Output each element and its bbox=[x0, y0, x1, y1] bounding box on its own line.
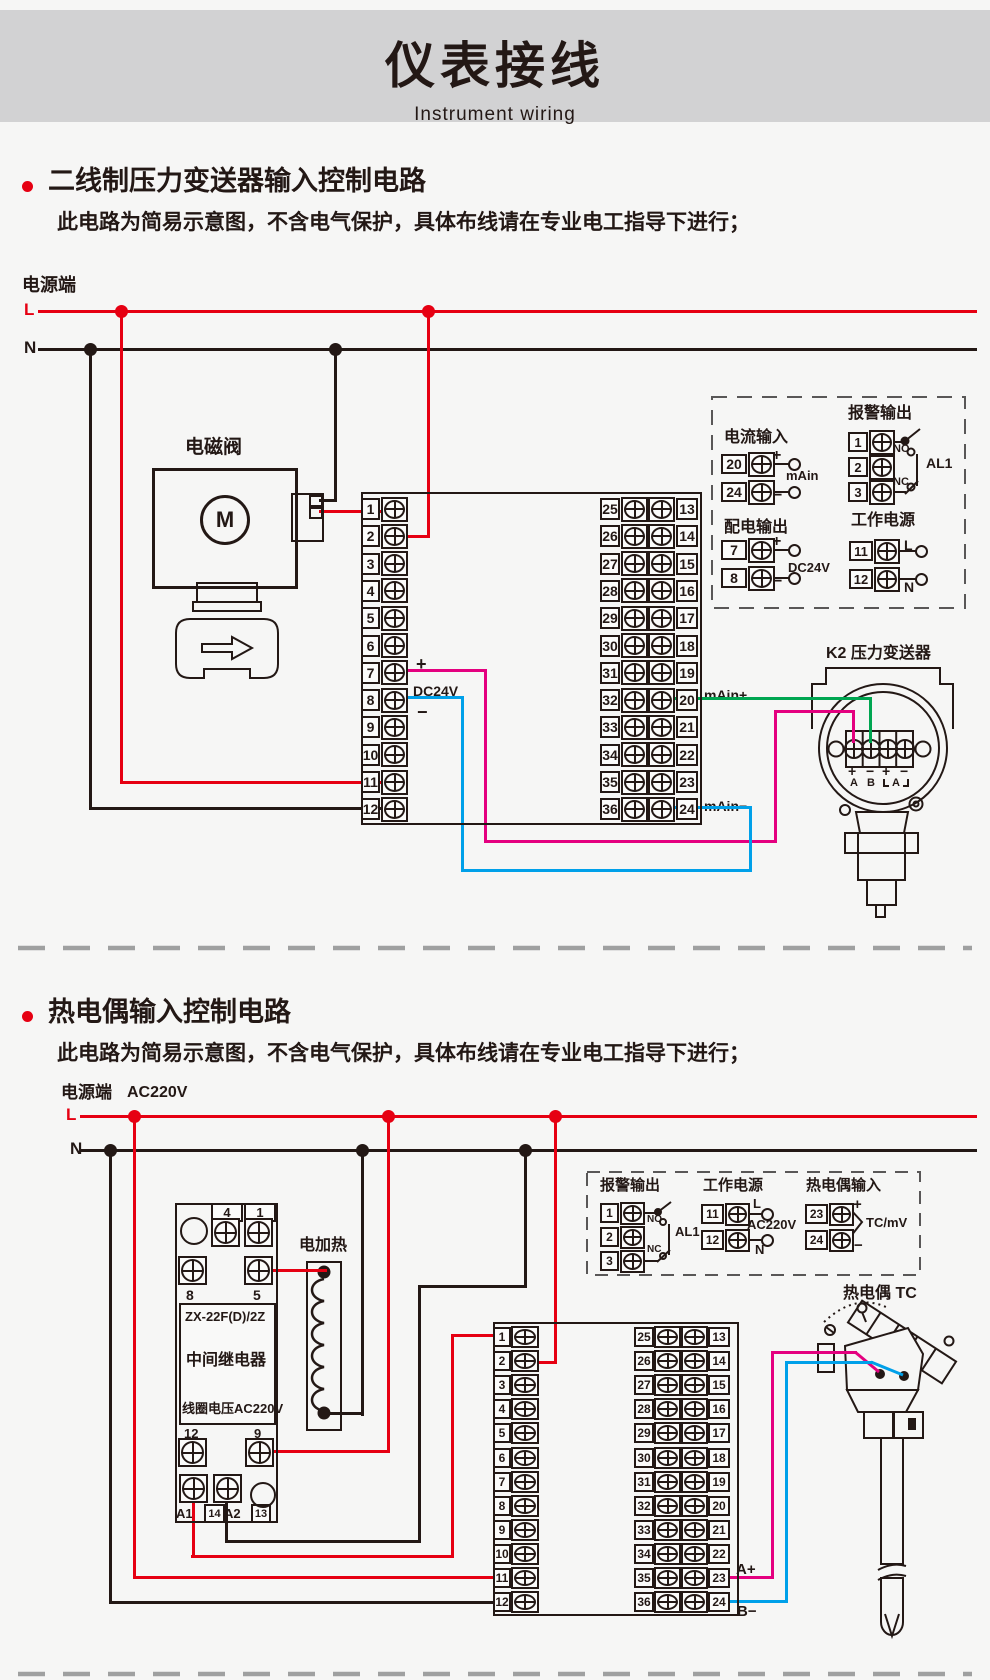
wire-segment bbox=[334, 348, 337, 502]
wire-segment bbox=[133, 1576, 523, 1579]
terminal-screw bbox=[869, 455, 895, 480]
terminal-screw bbox=[869, 430, 895, 455]
panel1-alarm-no: NO bbox=[893, 444, 910, 455]
screw-cross-icon bbox=[684, 1401, 705, 1417]
wire-segment bbox=[109, 1149, 112, 1604]
terminal-number: 26 bbox=[600, 525, 620, 547]
transmitter-label: K2 压力变送器 bbox=[826, 646, 931, 662]
open-terminal bbox=[788, 458, 801, 471]
junction-dot bbox=[115, 305, 128, 318]
screw-cross-icon bbox=[877, 570, 897, 589]
screw-cross-icon bbox=[832, 1232, 851, 1249]
section2-bullet bbox=[22, 1011, 33, 1022]
terminal-screw bbox=[654, 1591, 681, 1613]
terminal-screw bbox=[621, 524, 648, 549]
transmitter-a: A bbox=[850, 778, 858, 789]
terminal-number: 20 bbox=[721, 454, 747, 474]
screw-cross-icon bbox=[514, 1522, 536, 1538]
section1-heading: 二线制压力变送器输入控制电路 bbox=[48, 168, 426, 195]
screw-cross-icon bbox=[684, 1498, 705, 1514]
terminal-number: 6 bbox=[493, 1448, 511, 1468]
terminal-screw bbox=[681, 1495, 708, 1517]
wire-segment bbox=[869, 697, 872, 743]
terminal-screw bbox=[620, 1226, 645, 1249]
terminal-screw bbox=[381, 524, 408, 549]
screw-cross-icon bbox=[651, 527, 672, 546]
screw-cross-icon bbox=[657, 1377, 678, 1393]
terminal-number: 12 bbox=[361, 798, 380, 820]
terminal-number: 10 bbox=[493, 1544, 511, 1564]
tc-b-minus-label: B− bbox=[737, 1604, 757, 1619]
terminal-screw bbox=[748, 566, 775, 591]
screw-cross-icon bbox=[657, 1474, 678, 1490]
wire-segment bbox=[133, 1115, 136, 1579]
screw-cross-icon bbox=[623, 1229, 642, 1246]
terminal-number: 15 bbox=[708, 1375, 730, 1395]
terminal-number: 1 bbox=[493, 1327, 511, 1347]
panel2-tc-label: TC/mV bbox=[866, 1216, 907, 1229]
terminal-number: 36 bbox=[600, 798, 620, 820]
terminal-number: 8 bbox=[493, 1496, 511, 1516]
terminal-screw bbox=[648, 770, 675, 795]
terminal-screw bbox=[244, 1218, 273, 1247]
screw-cross-icon bbox=[624, 609, 645, 628]
line-l-label-1: L bbox=[24, 301, 34, 318]
terminal-screw bbox=[654, 1519, 681, 1541]
terminal-screw bbox=[511, 1422, 539, 1444]
wire-segment bbox=[451, 1334, 454, 1558]
terminal-screw bbox=[621, 551, 648, 576]
wire-segment bbox=[109, 1601, 523, 1604]
valve-connector-pin bbox=[309, 495, 323, 507]
terminal-screw bbox=[681, 1567, 708, 1589]
terminal-screw bbox=[654, 1350, 681, 1372]
terminal-screw bbox=[648, 742, 675, 767]
screw-cross-icon bbox=[651, 554, 672, 573]
terminal-screw bbox=[511, 1495, 539, 1517]
junction-dot bbox=[84, 343, 97, 356]
terminal-screw bbox=[648, 551, 675, 576]
terminal-number: 21 bbox=[708, 1520, 730, 1540]
screw-cross-icon bbox=[514, 1353, 536, 1369]
screw-cross-icon bbox=[751, 569, 772, 588]
terminal-number: 22 bbox=[676, 744, 698, 766]
terminal-number: 15 bbox=[676, 553, 698, 575]
terminal-screw bbox=[621, 578, 648, 603]
screw-cross-icon bbox=[514, 1570, 536, 1586]
terminal-number: 1 bbox=[361, 498, 380, 520]
terminal-number: 10 bbox=[361, 744, 380, 766]
terminal-screw bbox=[511, 1471, 539, 1493]
terminal-number: 7 bbox=[361, 662, 380, 684]
terminal-number: 11 bbox=[849, 541, 873, 561]
junction-dot bbox=[128, 1110, 141, 1123]
screw-cross-icon bbox=[624, 581, 645, 600]
screw-cross-icon bbox=[657, 1425, 678, 1441]
terminal-number: 1 bbox=[848, 432, 868, 452]
terminal-screw bbox=[748, 480, 775, 505]
terminal-screw bbox=[381, 688, 408, 713]
terminal-screw bbox=[244, 1256, 273, 1285]
terminal-number: 16 bbox=[708, 1399, 730, 1419]
screw-cross-icon bbox=[872, 433, 892, 452]
terminal-screw bbox=[381, 578, 408, 603]
panel1-alarm-al1: AL1 bbox=[926, 456, 952, 470]
open-terminal bbox=[788, 486, 801, 499]
screw-cross-icon bbox=[657, 1498, 678, 1514]
terminal-screw bbox=[511, 1519, 539, 1541]
screw-cross-icon bbox=[657, 1329, 678, 1345]
panel2-alarm-al1: AL1 bbox=[675, 1225, 700, 1238]
screw-cross-icon bbox=[623, 1205, 642, 1222]
terminal-number: 13 bbox=[676, 498, 698, 520]
terminal-screw bbox=[681, 1374, 708, 1396]
terminal-screw bbox=[621, 606, 648, 631]
screw-cross-icon bbox=[657, 1546, 678, 1562]
terminal-number: 24 bbox=[721, 482, 747, 502]
terminal-screw bbox=[874, 539, 900, 564]
screw-cross-icon bbox=[651, 636, 672, 655]
terminal-screw bbox=[654, 1543, 681, 1565]
terminal-screw bbox=[620, 1202, 645, 1225]
screw-cross-icon bbox=[684, 1546, 705, 1562]
transmitter-p2: + bbox=[882, 764, 890, 778]
terminal-screw bbox=[648, 524, 675, 549]
terminal-screw bbox=[511, 1543, 539, 1565]
screw-cross-icon bbox=[657, 1353, 678, 1369]
screw-cross-icon bbox=[216, 1477, 239, 1500]
terminal-screw bbox=[511, 1398, 539, 1420]
terminal-screw bbox=[681, 1398, 708, 1420]
terminal-number: 9 bbox=[493, 1520, 511, 1540]
line-l-label-2: L bbox=[66, 1106, 76, 1123]
terminal-number: 16 bbox=[676, 580, 698, 602]
terminal-screw bbox=[648, 606, 675, 631]
screw-cross-icon bbox=[384, 663, 405, 682]
wire-segment bbox=[418, 1285, 421, 1543]
screw-cross-icon bbox=[684, 1425, 705, 1441]
screw-cross-icon bbox=[514, 1546, 536, 1562]
terminal-number: 18 bbox=[676, 635, 698, 657]
terminal-screw bbox=[725, 1203, 750, 1226]
terminal-number: 2 bbox=[600, 1227, 619, 1247]
terminal-screw bbox=[511, 1326, 539, 1348]
terminal-number: 26 bbox=[634, 1351, 654, 1371]
terminal-number: 23 bbox=[676, 771, 698, 793]
terminal-screw bbox=[829, 1203, 854, 1226]
terminal-screw bbox=[381, 660, 408, 685]
solenoid-valve-label: 电磁阀 bbox=[185, 438, 242, 457]
screw-cross-icon bbox=[651, 718, 672, 737]
terminal-number: 2 bbox=[848, 457, 868, 477]
wire-segment bbox=[852, 710, 855, 743]
terminal-number: 2 bbox=[361, 525, 380, 547]
screw-cross-icon bbox=[384, 500, 405, 519]
terminal-number: 11 bbox=[701, 1204, 724, 1224]
terminal-number: 32 bbox=[634, 1496, 654, 1516]
terminal-screw bbox=[654, 1398, 681, 1420]
wire-segment bbox=[771, 1352, 774, 1579]
screw-cross-icon bbox=[384, 581, 405, 600]
section2-heading: 热电偶输入控制电路 bbox=[48, 999, 291, 1026]
terminal-number: 35 bbox=[634, 1568, 654, 1588]
terminal-screw bbox=[829, 1229, 854, 1252]
terminal-screw bbox=[654, 1471, 681, 1493]
terminal-screw bbox=[648, 633, 675, 658]
screw-cross-icon bbox=[651, 500, 672, 519]
screw-cross-icon bbox=[384, 773, 405, 792]
transmitter-b: B bbox=[867, 778, 875, 789]
terminal-screw bbox=[654, 1567, 681, 1589]
screw-cross-icon bbox=[624, 773, 645, 792]
wire-segment bbox=[461, 869, 752, 872]
screw-cross-icon bbox=[384, 800, 405, 819]
heater-label: 电加热 bbox=[299, 1238, 347, 1254]
terminal-screw bbox=[621, 770, 648, 795]
wire-segment bbox=[38, 348, 977, 351]
terminal-screw bbox=[621, 633, 648, 658]
terminal-screw bbox=[681, 1543, 708, 1565]
open-terminal bbox=[788, 572, 801, 585]
terminal-number: 8 bbox=[361, 689, 380, 711]
terminal-screw bbox=[621, 742, 648, 767]
wire-segment bbox=[484, 840, 777, 843]
junction-dot bbox=[549, 1110, 562, 1123]
open-terminal bbox=[915, 573, 928, 586]
screw-cross-icon bbox=[624, 745, 645, 764]
screw-cross-icon bbox=[624, 691, 645, 710]
terminal-screw bbox=[681, 1519, 708, 1541]
terminal-screw bbox=[648, 688, 675, 713]
terminal-number: 25 bbox=[634, 1327, 654, 1347]
terminal-screw bbox=[681, 1422, 708, 1444]
terminal-screw bbox=[648, 497, 675, 522]
terminal-screw bbox=[654, 1495, 681, 1517]
terminal-number: 3 bbox=[493, 1375, 511, 1395]
terminal-number: 35 bbox=[600, 771, 620, 793]
terminal-screw bbox=[748, 538, 775, 563]
terminal-screw bbox=[648, 578, 675, 603]
terminal-number: 2 bbox=[493, 1351, 511, 1371]
open-terminal bbox=[761, 1208, 774, 1221]
wire-segment bbox=[120, 781, 402, 784]
screw-cross-icon bbox=[832, 1206, 851, 1223]
wire-segment bbox=[265, 1450, 390, 1453]
screw-cross-icon bbox=[514, 1594, 536, 1610]
terminal-screw bbox=[381, 606, 408, 631]
terminal-screw bbox=[178, 1438, 207, 1467]
power-terminal-label-1: 电源端 bbox=[22, 276, 76, 294]
terminal-number: 7 bbox=[721, 540, 747, 560]
terminal-screw bbox=[511, 1591, 539, 1613]
terminal-number: 18 bbox=[708, 1448, 730, 1468]
terminal-number: 11 bbox=[493, 1568, 511, 1588]
screw-cross-icon bbox=[182, 1477, 205, 1500]
wire-segment bbox=[771, 1351, 857, 1354]
screw-cross-icon bbox=[624, 663, 645, 682]
terminal-number: 33 bbox=[600, 716, 620, 738]
terminal-number: 31 bbox=[600, 662, 620, 684]
panel1-work-n: N bbox=[904, 580, 914, 594]
relay-hole-icon bbox=[250, 1482, 276, 1508]
panel1-alarm-nc: NC bbox=[893, 477, 909, 488]
terminal-screw bbox=[511, 1350, 539, 1372]
instrument-wiring-page: 仪表接线 Instrument wiring 二线制压力变送器输入控制电路 此电… bbox=[0, 0, 990, 1680]
junction-dot bbox=[382, 1110, 395, 1123]
terminal-screw bbox=[511, 1567, 539, 1589]
terminal-number: 9 bbox=[361, 716, 380, 738]
screw-cross-icon bbox=[514, 1377, 536, 1393]
screw-cross-icon bbox=[384, 554, 405, 573]
terminal-number: 11 bbox=[361, 771, 380, 793]
screw-cross-icon bbox=[651, 691, 672, 710]
screw-cross-icon bbox=[248, 1441, 271, 1464]
screw-cross-icon bbox=[514, 1474, 536, 1490]
terminal-screw bbox=[178, 1256, 207, 1285]
screw-cross-icon bbox=[684, 1594, 705, 1610]
screw-cross-icon bbox=[514, 1425, 536, 1441]
terminal-number: 7 bbox=[493, 1472, 511, 1492]
terminal-number: 36 bbox=[634, 1592, 654, 1612]
terminal-number: 25 bbox=[600, 498, 620, 520]
screw-cross-icon bbox=[384, 609, 405, 628]
panel2-work-l: L bbox=[753, 1197, 761, 1210]
terminal-number: 8 bbox=[721, 568, 747, 588]
screw-cross-icon bbox=[657, 1401, 678, 1417]
terminal-screw bbox=[621, 497, 648, 522]
terminal-number: 32 bbox=[600, 689, 620, 711]
screw-cross-icon bbox=[651, 773, 672, 792]
terminal-screw bbox=[648, 797, 675, 822]
screw-cross-icon bbox=[684, 1353, 705, 1369]
terminal-number: 24 bbox=[805, 1230, 828, 1250]
terminal-number: 4 bbox=[361, 580, 380, 602]
panel1-current-label: mAin bbox=[786, 469, 819, 482]
terminal-screw bbox=[869, 480, 895, 505]
screw-cross-icon bbox=[651, 663, 672, 682]
terminal-number: 12 bbox=[849, 569, 873, 589]
section2-note: 此电路为简易示意图，不含电气保护，具体布线请在专业电工指导下进行； bbox=[57, 1043, 750, 1064]
wire-segment bbox=[785, 1362, 788, 1603]
terminal-screw bbox=[621, 660, 648, 685]
valve-connector-pin bbox=[309, 507, 323, 519]
open-terminal bbox=[761, 1234, 774, 1247]
wire-segment bbox=[749, 806, 752, 872]
open-terminal bbox=[915, 545, 928, 558]
wire-segment bbox=[226, 1540, 421, 1543]
terminal-screw bbox=[511, 1374, 539, 1396]
terminal-number: 27 bbox=[600, 553, 620, 575]
junction-dot bbox=[104, 1144, 117, 1157]
terminal-number: 34 bbox=[634, 1544, 654, 1564]
terminal-screw bbox=[511, 1447, 539, 1469]
panel2-alarm-nc: NC bbox=[647, 1245, 661, 1255]
terminal-screw bbox=[381, 551, 408, 576]
terminal-number: 21 bbox=[676, 716, 698, 738]
terminal-number: 5 bbox=[493, 1423, 511, 1443]
voltage-label-2: AC220V bbox=[127, 1085, 187, 1101]
screw-cross-icon bbox=[684, 1329, 705, 1345]
terminal-number: 33 bbox=[634, 1520, 654, 1540]
terminal-screw bbox=[213, 1474, 242, 1503]
wire-segment bbox=[325, 1412, 364, 1415]
terminal-screw bbox=[245, 1438, 274, 1467]
page-subtitle: Instrument wiring bbox=[0, 104, 990, 126]
screw-cross-icon bbox=[624, 500, 645, 519]
screw-cross-icon bbox=[684, 1474, 705, 1490]
panel1-current-title: 电流输入 bbox=[724, 430, 788, 446]
terminal-number: 1 bbox=[600, 1203, 619, 1223]
terminal-screw bbox=[621, 688, 648, 713]
wire-segment bbox=[38, 310, 977, 313]
thermocouple-label: 热电偶 TC bbox=[843, 1286, 917, 1302]
screw-cross-icon bbox=[657, 1594, 678, 1610]
screw-cross-icon bbox=[181, 1259, 204, 1282]
wire-segment bbox=[191, 1555, 454, 1558]
screw-cross-icon bbox=[624, 718, 645, 737]
screw-cross-icon bbox=[651, 581, 672, 600]
transmitter-m1: − bbox=[866, 764, 874, 778]
terminal-number: 23 bbox=[708, 1568, 730, 1588]
terminal-number: 27 bbox=[634, 1375, 654, 1395]
section1-note: 此电路为简易示意图，不含电气保护，具体布线请在专业电工指导下进行； bbox=[57, 212, 750, 233]
terminal-number: 19 bbox=[708, 1472, 730, 1492]
screw-cross-icon bbox=[651, 745, 672, 764]
screw-cross-icon bbox=[684, 1522, 705, 1538]
screw-cross-icon bbox=[514, 1498, 536, 1514]
relay-hole-icon bbox=[180, 1217, 208, 1245]
panel2-work-title: 工作电源 bbox=[703, 1178, 763, 1193]
terminal-number: 24 bbox=[676, 798, 698, 820]
panel2-alarm-no: NO bbox=[647, 1215, 662, 1225]
junction-dot bbox=[329, 343, 342, 356]
terminal-screw bbox=[681, 1326, 708, 1348]
screw-cross-icon bbox=[684, 1377, 705, 1393]
terminal-screw bbox=[620, 1250, 645, 1273]
terminal-number: 14 bbox=[676, 525, 698, 547]
screw-cross-icon bbox=[872, 458, 892, 477]
terminal-screw bbox=[748, 452, 775, 477]
terminal-number: 4 bbox=[493, 1399, 511, 1419]
screw-cross-icon bbox=[751, 483, 772, 502]
wire-segment bbox=[89, 348, 92, 810]
wire-segment bbox=[387, 1115, 390, 1453]
wire-segment bbox=[361, 1149, 364, 1416]
panel1-alarm-title: 报警输出 bbox=[848, 406, 912, 422]
screw-cross-icon bbox=[624, 554, 645, 573]
wire-segment bbox=[89, 807, 402, 810]
screw-cross-icon bbox=[247, 1221, 270, 1244]
terminal-number: 30 bbox=[600, 635, 620, 657]
terminal-screw bbox=[648, 660, 675, 685]
terminal-screw bbox=[381, 742, 408, 767]
terminal-number: 23 bbox=[805, 1204, 828, 1224]
junction-dot bbox=[356, 1144, 369, 1157]
terminal-screw bbox=[381, 770, 408, 795]
terminal-screw bbox=[681, 1591, 708, 1613]
screw-cross-icon bbox=[684, 1450, 705, 1466]
screw-cross-icon bbox=[514, 1329, 536, 1345]
wire-segment bbox=[80, 1115, 977, 1118]
screw-cross-icon bbox=[624, 527, 645, 546]
wire-segment bbox=[774, 710, 855, 713]
terminal-number: 17 bbox=[676, 607, 698, 629]
terminal-number: 29 bbox=[634, 1423, 654, 1443]
wire-segment bbox=[785, 1361, 873, 1364]
page-title: 仪表接线 bbox=[0, 26, 990, 98]
terminal-screw bbox=[725, 1229, 750, 1252]
screw-cross-icon bbox=[384, 527, 405, 546]
